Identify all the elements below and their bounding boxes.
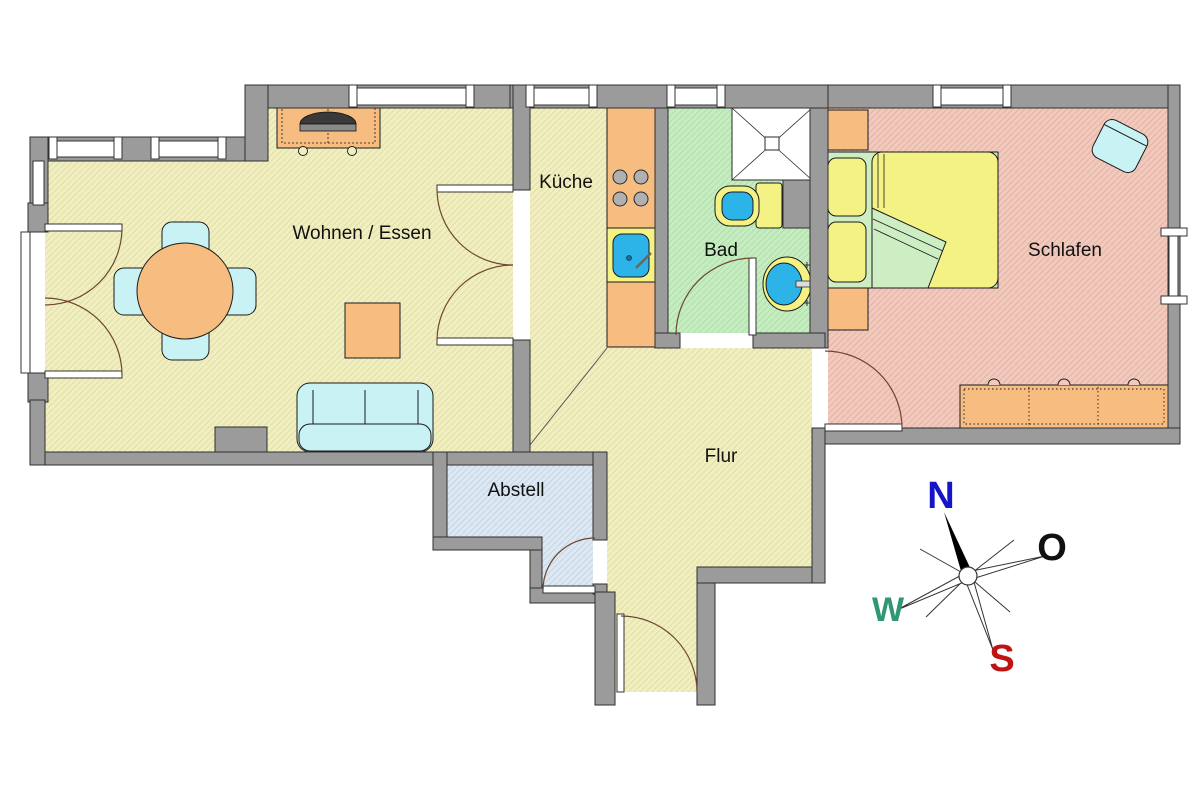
sofa [297,383,433,452]
compass-south-label: S [989,638,1014,680]
kitchen-sink-icon [607,228,655,282]
living-window-west [33,161,44,205]
hall-label: Flur [705,446,738,467]
shower-icon [732,108,812,180]
compass-east-label: O [1037,527,1067,569]
living-window-2 [155,141,222,157]
nightstand-south [828,288,868,330]
coffee-table [345,303,400,358]
kitchen-counter [607,108,655,347]
kitchen-window [530,88,593,105]
wall-pillar-stub [215,427,267,452]
pillow-bottom [828,222,866,282]
bath-duct [783,180,812,228]
kitchen-label: Küche [539,172,593,193]
toilet-icon [715,183,782,228]
bedroom-window-east [1169,232,1178,297]
nightstand-north [828,110,868,150]
compass-west-label: W [872,591,905,629]
floor-plan: Wohnen / Essen Küche Bad Schlafen Flur A… [0,0,1200,800]
floor-plan-canvas: Wohnen / Essen Küche Bad Schlafen Flur A… [0,0,1200,800]
wardrobe [960,379,1168,428]
storage-label: Abstell [487,480,544,501]
washbasin-icon [763,257,812,311]
compass-north-label: N [927,475,954,517]
pillow-top [828,158,866,216]
living-room-label: Wohnen / Essen [292,223,431,244]
bedroom-label: Schlafen [1028,240,1102,261]
bedroom-window-top [937,88,1007,105]
balcony-door-leaf-outside [21,232,30,373]
living-window-3 [353,88,470,105]
dining-table [137,243,233,339]
compass-rose-icon: N O W S [872,475,1067,680]
bath-label: Bad [704,240,738,261]
living-window-1 [53,141,118,157]
bath-window [671,88,721,105]
